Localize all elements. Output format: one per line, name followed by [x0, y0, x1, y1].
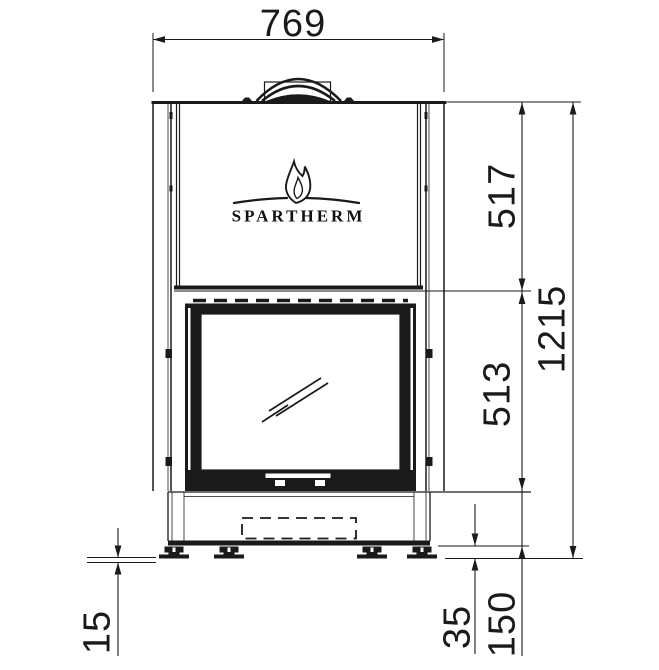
spartherm-logo: SPARTHERM: [232, 162, 366, 226]
dim-label-517: 517: [481, 163, 523, 229]
top-panel-line: [152, 101, 447, 104]
adjustable-foot: [159, 547, 189, 559]
hinge-mark: [166, 457, 173, 466]
dimension-plinth-150: 150: [481, 547, 525, 658]
dimension-height-513: 513: [476, 292, 525, 490]
front-lip: [174, 286, 531, 292]
logo-text: SPARTHERM: [232, 207, 366, 226]
hinge-mark: [426, 457, 433, 466]
dimension-height-1215: 1215: [531, 103, 576, 559]
side-panel-left: [153, 104, 173, 491]
dim-label-1215: 1215: [531, 285, 573, 374]
door-handle-slot: [266, 474, 331, 479]
vent-opening: [242, 518, 356, 539]
door-frame: [185, 301, 416, 492]
side-panel-right: [425, 104, 445, 491]
dimension-adjust-15: 15: [76, 528, 156, 656]
base-frame-bar: [168, 541, 430, 546]
hinge-mark: [166, 349, 173, 358]
adjustable-foot: [407, 547, 437, 559]
dim-label-513: 513: [476, 361, 518, 427]
flame-icon: [286, 162, 310, 204]
dim-label-35: 35: [436, 605, 478, 649]
dimension-foot-35: 35: [436, 504, 478, 654]
hinge-mark: [426, 349, 433, 358]
dim-label-150: 150: [481, 591, 523, 657]
dim-label-15: 15: [76, 610, 118, 654]
clip-right: [344, 98, 354, 102]
door-bottom-bar: [185, 470, 416, 491]
fireplace-front-view: SPARTHERM: [0, 0, 659, 670]
dim-label-769: 769: [260, 3, 326, 45]
adjustable-foot: [214, 547, 244, 559]
logo-underline-right: [307, 198, 360, 203]
clip-left: [242, 98, 252, 102]
dimension-drawing: SPARTHERM: [0, 0, 659, 670]
adjustable-foot: [357, 547, 387, 559]
flue-collar: [242, 79, 354, 102]
firebox-body: [177, 104, 421, 286]
logo-underline-left: [234, 198, 287, 203]
flame-inner-icon: [294, 178, 302, 199]
